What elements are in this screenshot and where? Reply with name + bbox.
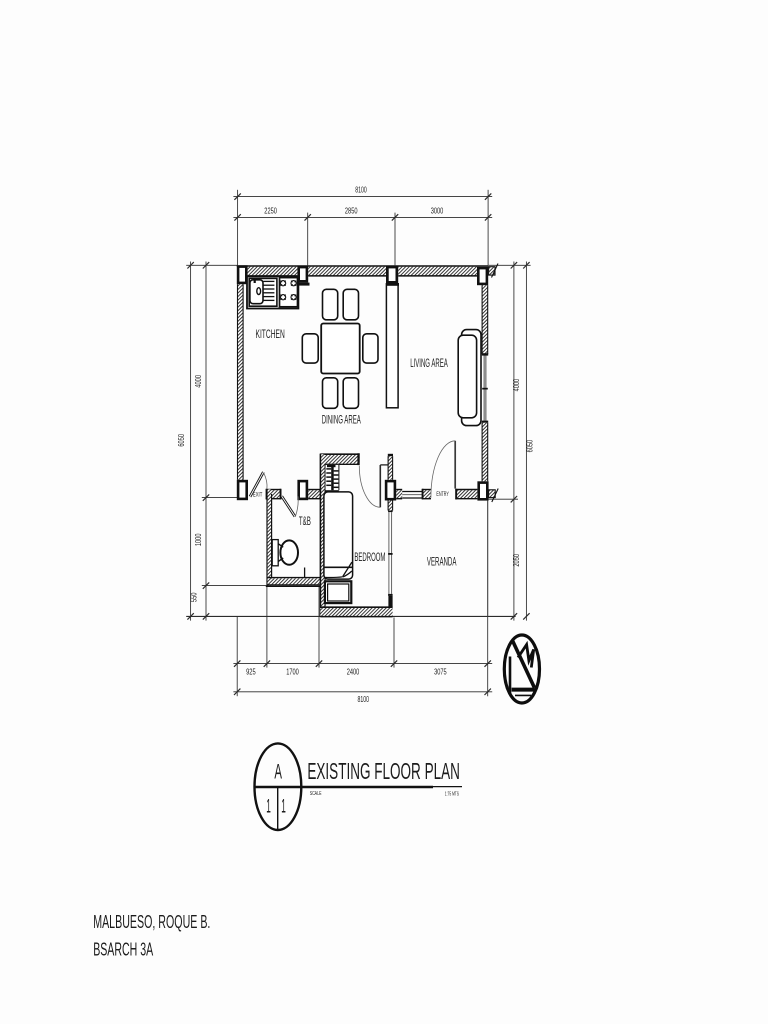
svg-text:BSARCH 3A: BSARCH 3A — [93, 939, 153, 959]
svg-text:T&B: T&B — [299, 515, 311, 528]
svg-text:MALBUESO, ROQUE B.: MALBUESO, ROQUE B. — [93, 912, 210, 932]
svg-text:A: A — [274, 760, 282, 783]
svg-text:ENTRY: ENTRY — [436, 492, 449, 498]
svg-text:2400: 2400 — [347, 667, 360, 676]
svg-text:LIVING AREA: LIVING AREA — [410, 357, 448, 370]
svg-text:BEDROOM: BEDROOM — [354, 551, 385, 564]
svg-text:4000: 4000 — [512, 378, 521, 391]
svg-text:925: 925 — [246, 667, 256, 676]
svg-text:EXISTING FLOOR PLAN: EXISTING FLOOR PLAN — [307, 758, 460, 784]
svg-text:550: 550 — [189, 592, 198, 602]
svg-text:VERANDA: VERANDA — [427, 555, 457, 568]
svg-text:8100: 8100 — [355, 185, 367, 194]
svg-text:4000: 4000 — [194, 375, 203, 388]
svg-text:6050: 6050 — [525, 439, 534, 452]
svg-text:1: 1 — [281, 797, 286, 818]
svg-text:DINING AREA: DINING AREA — [322, 414, 361, 427]
svg-text:8100: 8100 — [358, 695, 370, 704]
svg-text:1: 1 — [266, 797, 271, 818]
svg-text:EXIT: EXIT — [253, 493, 263, 499]
svg-text:1:75 MTS: 1:75 MTS — [445, 791, 460, 797]
svg-text:KITCHEN: KITCHEN — [256, 328, 285, 341]
svg-text:SCALE: SCALE — [310, 791, 322, 797]
svg-text:2250: 2250 — [264, 206, 277, 215]
svg-text:3075: 3075 — [434, 667, 447, 676]
svg-text:1700: 1700 — [286, 667, 299, 676]
svg-text:1000: 1000 — [194, 533, 203, 546]
svg-text:2850: 2850 — [345, 206, 358, 215]
svg-text:6050: 6050 — [177, 434, 186, 447]
svg-text:2050: 2050 — [512, 554, 521, 567]
svg-text:3000: 3000 — [431, 206, 444, 215]
